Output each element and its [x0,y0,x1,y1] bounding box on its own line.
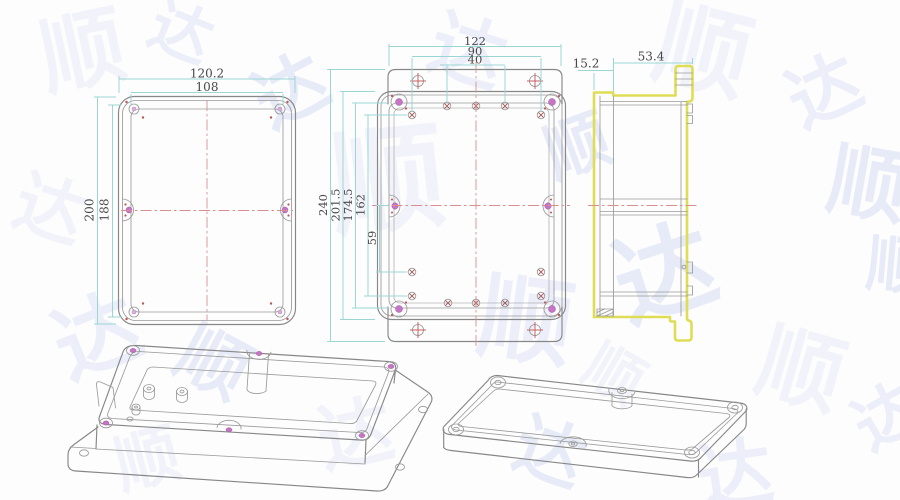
base-side-bosses [389,195,554,217]
cover-dimensions: 120.2 108 200 188 [83,67,296,325]
cad-drawing: 120.2 108 200 188 [0,0,900,500]
dim-cover-width-outer: 120.2 [190,67,224,81]
dim-side-base-depth: 53.4 [638,50,665,64]
dim-cover-height-inner: 188 [98,199,112,222]
dim-base-center-to-hole: 59 [365,231,379,246]
dim-cover-width-inner: 108 [196,80,219,94]
base-3d-flange-holes [80,406,428,470]
cover-top-view: 120.2 108 200 188 [83,67,296,325]
dim-cover-height-outer: 200 [83,199,97,222]
base-3d-mid-bosses [217,351,271,432]
base-3d-floor-bosses [127,385,188,422]
dim-base-height-holes: 162 [354,194,368,216]
side-outline-bottom [594,297,692,341]
cover-3d-view [443,376,747,478]
cover-3d-corner-bosses [449,377,743,458]
base-pilot-holes [408,102,545,307]
side-outline-top [594,66,693,317]
base-top-view: 122 90 40 240 201.5 174.5 [316,34,570,346]
side-view: 15.2 53.4 [573,50,698,341]
dim-base-width-holes-inner: 40 [468,53,483,67]
side-inner-lines [597,73,693,316]
base-3d-view [68,345,432,491]
drawing-canvas: 顺达达顺达顺顺达顺达达顺达顺达顺达达顺达顺顺 [0,0,900,500]
dim-side-lid-thickness: 15.2 [573,57,600,71]
